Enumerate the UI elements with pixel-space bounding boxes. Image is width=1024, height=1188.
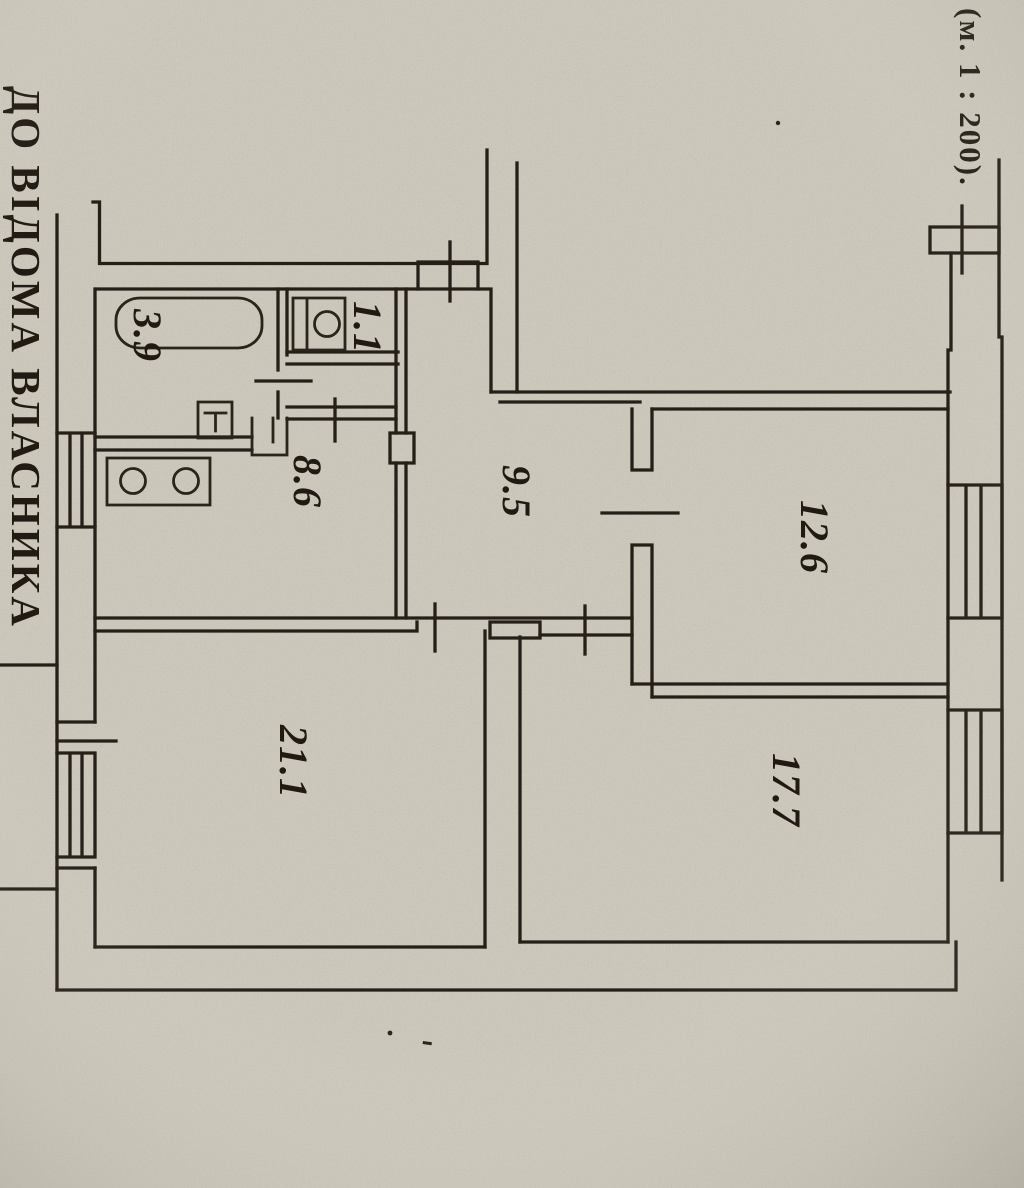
- scanned-floor-plan-page: 3.9 1.1 8.6 9.5 12.6 17.7 21.1 ДО ВІДОМА…: [0, 0, 1024, 1188]
- photo-vignette: [0, 0, 1024, 1188]
- floor-plan-drawing: 3.9 1.1 8.6 9.5 12.6 17.7 21.1 ДО ВІДОМА…: [0, 0, 1024, 1188]
